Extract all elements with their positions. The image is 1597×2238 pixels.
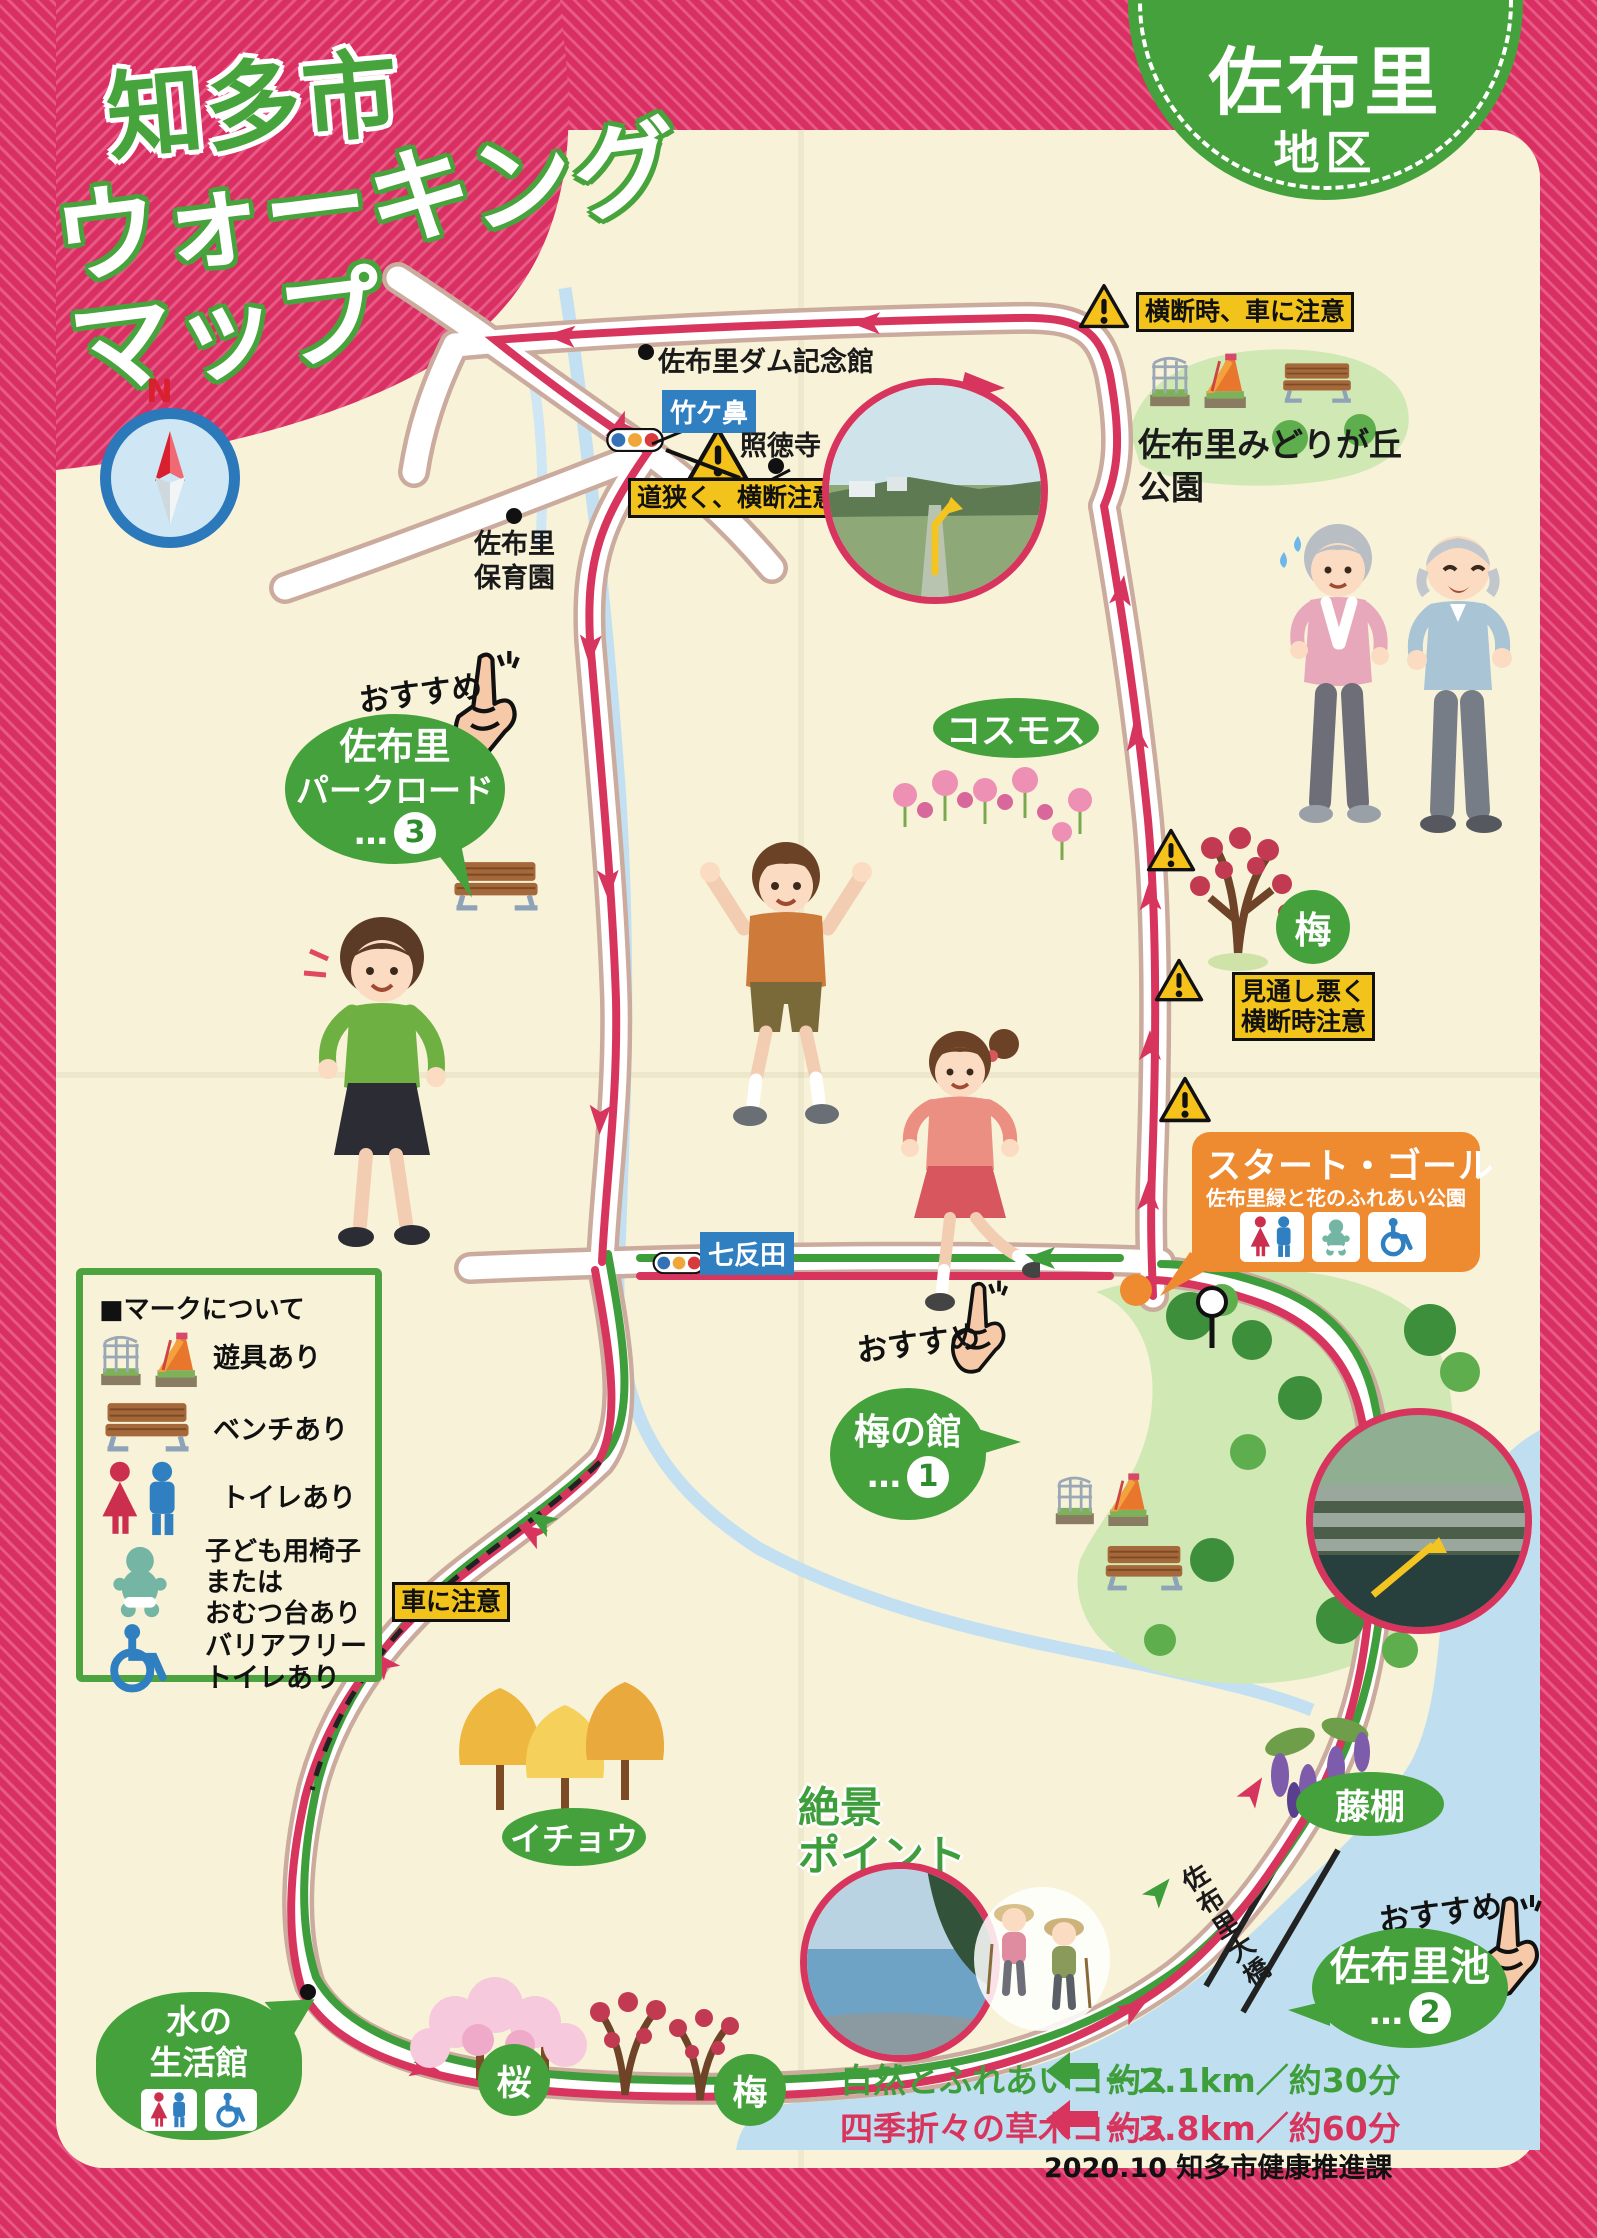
legend-label: 子ども用椅子またはおむつ台あり — [205, 1537, 361, 1631]
poi-dot — [300, 1984, 316, 2000]
place-nursery: 佐布里保育園 — [474, 528, 555, 596]
woman-illustration — [292, 905, 472, 1285]
toilet-icon — [1240, 1212, 1304, 1262]
baby-chair-icon — [1312, 1212, 1360, 1262]
place-shotokuji: 照徳寺 — [740, 424, 821, 463]
walking-map-page: 知多市 ウォーキング マップ 佐布里 地区 N 佐布里ダム記念館 竹ケ鼻 照徳寺… — [0, 0, 1597, 2238]
traffic-signal-icon — [654, 1253, 705, 1273]
poi-dot — [506, 508, 522, 524]
elderly-couple-illustration — [1258, 512, 1528, 882]
playground-icon — [97, 1327, 201, 1387]
place-sakura: 桜 — [478, 2044, 550, 2116]
bench-icon — [99, 1399, 195, 1453]
place-shichitanda: 七反田 — [700, 1232, 794, 1275]
photo-dam-steps — [1306, 1408, 1532, 1634]
compass-north-label: N — [146, 372, 173, 410]
toilet-icon — [141, 2089, 197, 2131]
traffic-signal-icon — [607, 429, 662, 451]
baby-chair-icon — [107, 1543, 173, 1619]
warning-car: 車に注意 — [392, 1582, 510, 1622]
place-dam-hall: 佐布里ダム記念館 — [658, 340, 874, 379]
bubble-umenoyakata: 梅の館 …1 — [830, 1388, 986, 1520]
course-green-arrow — [1046, 2052, 1098, 2090]
course-pink-arrow — [1046, 2100, 1098, 2138]
warning-triangle-icon — [689, 429, 747, 479]
accessible-toilet-icon — [1368, 1212, 1426, 1262]
place-midorigaoka-park: 佐布里みどりが丘公園 — [1138, 424, 1402, 510]
accessible-toilet-icon — [99, 1623, 179, 1693]
course-pink-detail: 約3.8km／約60分 — [1108, 2102, 1401, 2150]
legend-header: ■マークについて — [99, 1289, 305, 1326]
place-ume-east: 梅 — [1276, 890, 1350, 964]
legend-label: 遊具あり — [213, 1343, 321, 1375]
warning-visibility: 見通し悪く横断時注意 — [1232, 972, 1375, 1041]
place-icho: イチョウ — [502, 1808, 646, 1866]
place-cosmos: コスモス — [933, 698, 1099, 758]
district-name: 佐布里 — [1128, 23, 1523, 130]
warning-triangle-icon — [1081, 286, 1128, 327]
bubble-mizuno-seikatsukan: 水の 生活館 — [96, 1992, 302, 2140]
toilet-icon — [95, 1459, 187, 1539]
start-goal-subtitle: 佐布里緑と花のふれあい公園 — [1206, 1182, 1466, 1211]
footer-credit: 2020.10 知多市健康推進課 — [1044, 2146, 1392, 2185]
district-sub: 地区 — [1128, 117, 1523, 183]
place-ume-south: 梅 — [714, 2054, 786, 2126]
start-goal-box: スタート・ゴール 佐布里緑と花のふれあい公園 — [1192, 1132, 1480, 1272]
girl-illustration — [880, 1018, 1040, 1318]
legend-box: ■マークについて 遊具あり ベンチあり トイレあり 子ども用椅子またはおむつ台あ… — [76, 1268, 382, 1682]
hikers-illustration — [972, 1884, 1112, 2034]
warning-crossing-car: 横断時、車に注意 — [1136, 292, 1354, 332]
accessible-toilet-icon — [205, 2089, 257, 2131]
bubble-tail — [1288, 2000, 1330, 2026]
bubble-soriike: 佐布里池 …2 — [1312, 1928, 1508, 2048]
bubble-tail — [975, 1428, 1021, 1456]
compass-icon — [100, 408, 240, 548]
legend-label: ベンチあり — [213, 1415, 348, 1447]
photo-street-view — [822, 378, 1048, 604]
place-fujidana: 藤棚 — [1296, 1772, 1444, 1836]
poi-dot — [638, 344, 654, 360]
playground-icon — [1056, 1473, 1148, 1526]
legend-label: トイレあり — [221, 1483, 356, 1515]
ginkgo-trees — [459, 1682, 664, 1822]
district-badge: 佐布里 地区 — [1128, 0, 1523, 200]
warning-narrow-road: 道狭く、横断注意 — [628, 478, 846, 518]
legend-label: バリアフリートイレあり — [205, 1631, 367, 1696]
photo-lake-view — [800, 1862, 1000, 2062]
start-point-dot — [1120, 1274, 1152, 1306]
poi-dot — [768, 458, 784, 474]
boy-illustration — [692, 828, 877, 1138]
cosmos-flowers — [893, 767, 1092, 860]
course-green-detail: 約2.1km／約30分 — [1108, 2054, 1401, 2102]
